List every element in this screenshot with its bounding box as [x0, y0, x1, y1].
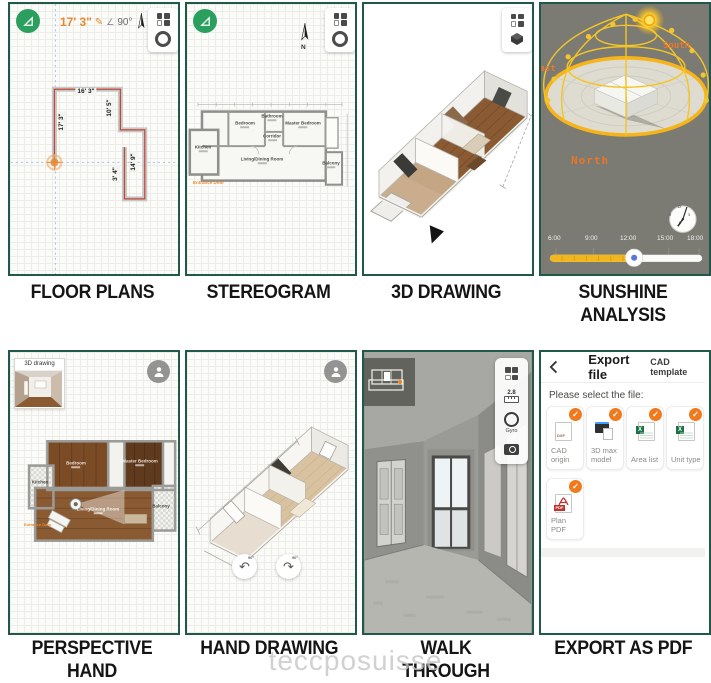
measurement-right-lower: 14' 9"	[130, 151, 138, 172]
panel-perspective-hand-drawing: Bedroom Master Bedroom Kitchen Living/Di…	[8, 350, 180, 635]
option-label: CAD origin	[551, 446, 581, 464]
export-title: Export file	[588, 352, 647, 382]
ruler-tool-badge[interactable]	[193, 9, 217, 33]
clock-12: 12	[677, 205, 681, 209]
option-label: Plan PDF	[551, 516, 581, 534]
room-label-master-bedroom: Master Bedroom	[285, 120, 321, 128]
measurement-top: 16' 3"	[75, 88, 96, 96]
excel-file-icon: X	[678, 422, 695, 441]
current-angle: 90°	[117, 17, 132, 28]
hand-drawing-canvas	[187, 352, 355, 633]
current-length: 17' 3"	[60, 15, 92, 29]
north-letter: N	[301, 44, 306, 51]
measurement-right-upper: 10' 5"	[106, 97, 114, 118]
drawing-status-bar: 17' 3" ✎ ∠ 90°	[60, 12, 147, 32]
option-label: Unit type	[671, 455, 701, 464]
caption-floor-plans: FLOOR PLANS	[4, 281, 180, 304]
room-label-kitchen: Kitchen	[32, 480, 49, 485]
3d-preview-inset[interactable]: 3D drawing	[14, 358, 65, 409]
room-label-balcony: Balcony	[152, 504, 170, 509]
clock-3: 3	[688, 213, 690, 217]
measurement-left: 17' 3"	[58, 111, 66, 132]
view-toolcard	[325, 8, 355, 52]
check-badge: ✓	[689, 408, 702, 421]
minimap-plan	[364, 358, 415, 406]
gyro-control[interactable]: Gyro	[504, 412, 519, 434]
south-label: South	[663, 41, 690, 51]
angle-icon: ∠	[106, 17, 114, 28]
inset-title: 3D drawing	[15, 359, 64, 371]
ruler-icon	[504, 396, 519, 403]
person-icon	[330, 366, 342, 378]
room-label-bedroom: Bedroom	[66, 460, 86, 468]
export-option-area-list[interactable]: ✓ X Area list	[626, 406, 664, 470]
rotate-cw-icon: ↷	[283, 559, 294, 575]
compass-needle-icon	[136, 12, 147, 32]
3d-model-icon	[595, 422, 609, 433]
room-label-bedroom: Bedroom	[235, 120, 255, 128]
caption-export: EXPORT AS PDF	[535, 637, 711, 660]
time-18: 18:00	[687, 235, 703, 242]
export-option-unit-type[interactable]: ✓ X Unit type	[666, 406, 704, 470]
clock-6: 6	[679, 221, 681, 225]
panel-sunshine-analysis: 12 3 6 9 South East North 6:00 9:00 12:0…	[539, 2, 711, 276]
panel-stereogram: Bedroom Bathroom Master Bedroom Kitchen …	[185, 2, 357, 276]
option-label: 3D max model	[591, 446, 621, 464]
dxf-file-icon: DXF	[555, 422, 572, 441]
export-option-3dmax[interactable]: ✓ 3D max model	[586, 406, 624, 470]
layout-grid-button[interactable]	[157, 13, 170, 26]
gyro-icon	[504, 412, 519, 427]
time-6: 6:00	[548, 235, 561, 242]
person-icon	[153, 366, 165, 378]
export-prompt: Please select the file:	[549, 390, 644, 401]
feature-showcase: 16' 3" 17' 3" 10' 5" 14' 9" 3' 4" 17' 3"…	[0, 0, 711, 683]
walkthrough-toolbar: 2.8 Gyro	[495, 358, 528, 464]
panel-hand-drawing: ↶ 90° ↷ 90°	[185, 350, 357, 635]
layout-grid-button[interactable]	[511, 14, 524, 27]
room-label-master: Master Bedroom	[122, 458, 158, 466]
section-divider	[541, 548, 705, 557]
check-badge: ✓	[609, 408, 622, 421]
time-9: 9:00	[585, 235, 598, 242]
export-option-cad-origin[interactable]: ✓ DXF CAD origin	[546, 406, 584, 470]
time-slider[interactable]	[550, 249, 702, 266]
time-12: 12:00	[620, 235, 636, 242]
rotate-ccw-button[interactable]: ↶ 90°	[232, 554, 257, 579]
north-needle-icon	[299, 22, 311, 44]
clock-icon	[670, 206, 696, 232]
export-header: Export file CAD template	[541, 352, 705, 383]
watermark: teccposuisse	[269, 645, 443, 677]
export-option-plan-pdf[interactable]: ✓ PDF Plan PDF	[546, 478, 584, 540]
room-label-bathroom: Bathroom	[261, 113, 282, 121]
rotate-cw-degrees: 90°	[292, 555, 298, 560]
check-badge: ✓	[569, 408, 582, 421]
check-badge: ✓	[649, 408, 662, 421]
north-arrow	[430, 225, 444, 243]
caption-stereogram: STEREOGRAM	[181, 281, 357, 304]
ruler-tool-badge[interactable]	[16, 9, 40, 33]
view-toolcard	[502, 8, 532, 52]
option-label: Area list	[631, 455, 661, 464]
room-label-living: Living/Dining Room	[77, 506, 120, 514]
room-label-kitchen: Kitchen	[195, 144, 212, 152]
entrance-door-label: Entrance Door	[24, 522, 52, 527]
layout-grid-button[interactable]	[334, 13, 347, 26]
panel-floor-plans: 16' 3" 17' 3" 10' 5" 14' 9" 3' 4" 17' 3"…	[8, 2, 180, 276]
clock-9: 9	[669, 213, 671, 217]
caption-3d-drawing: 3D DRAWING	[358, 281, 534, 304]
panel-export: Export file CAD template Please select t…	[539, 350, 711, 635]
pdf-file-icon: PDF	[555, 494, 572, 513]
settings-button[interactable]	[332, 31, 348, 47]
eye-height-value: 2.8	[504, 390, 519, 396]
layout-grid-button[interactable]	[505, 367, 518, 380]
3d-cube-button[interactable]	[510, 32, 524, 46]
walk-mode-button[interactable]	[324, 360, 347, 383]
measurement-inner: 3' 4"	[112, 165, 120, 183]
set-square-icon	[199, 15, 212, 28]
pencil-icon: ✎	[95, 17, 103, 28]
eye-height-control[interactable]: 2.8	[504, 390, 519, 403]
room-label-balcony: Balcony	[322, 160, 340, 168]
excel-file-icon: X	[638, 422, 655, 441]
rotate-cw-button[interactable]: ↷ 90°	[276, 554, 301, 579]
panel-walkthrough: 2.8 Gyro	[362, 350, 534, 635]
set-square-icon	[22, 15, 35, 28]
screenshot-camera-button[interactable]	[504, 444, 519, 455]
minimap[interactable]	[364, 358, 415, 406]
room-label-living: Living/Dining Room	[241, 156, 284, 164]
view-toolcard	[148, 8, 178, 52]
rotate-ccw-icon: ↶	[239, 559, 250, 575]
back-button[interactable]	[549, 360, 558, 374]
room-label-corridor: Corridor	[263, 133, 281, 141]
walk-mode-button[interactable]	[147, 360, 170, 383]
north-label: North	[571, 154, 609, 167]
entrance-door-label: Entrance Door	[193, 180, 224, 185]
caption-perspective: PERSPECTIVE HAND DRAWING	[27, 637, 157, 683]
rotate-ccw-degrees: 90°	[248, 555, 254, 560]
inset-room-view	[15, 371, 62, 407]
panel-3d-drawing	[362, 2, 534, 276]
wall-start-crosshair	[46, 154, 62, 170]
settings-button[interactable]	[155, 31, 171, 47]
time-15: 15:00	[657, 235, 673, 242]
caption-sunshine: SUNSHINE ANALYSIS	[563, 281, 683, 327]
check-badge: ✓	[569, 480, 582, 493]
gyro-label: Gyro	[506, 428, 518, 434]
east-label: East	[539, 64, 556, 74]
camera-position-dot	[398, 380, 402, 384]
export-subtitle: CAD template	[650, 357, 705, 377]
